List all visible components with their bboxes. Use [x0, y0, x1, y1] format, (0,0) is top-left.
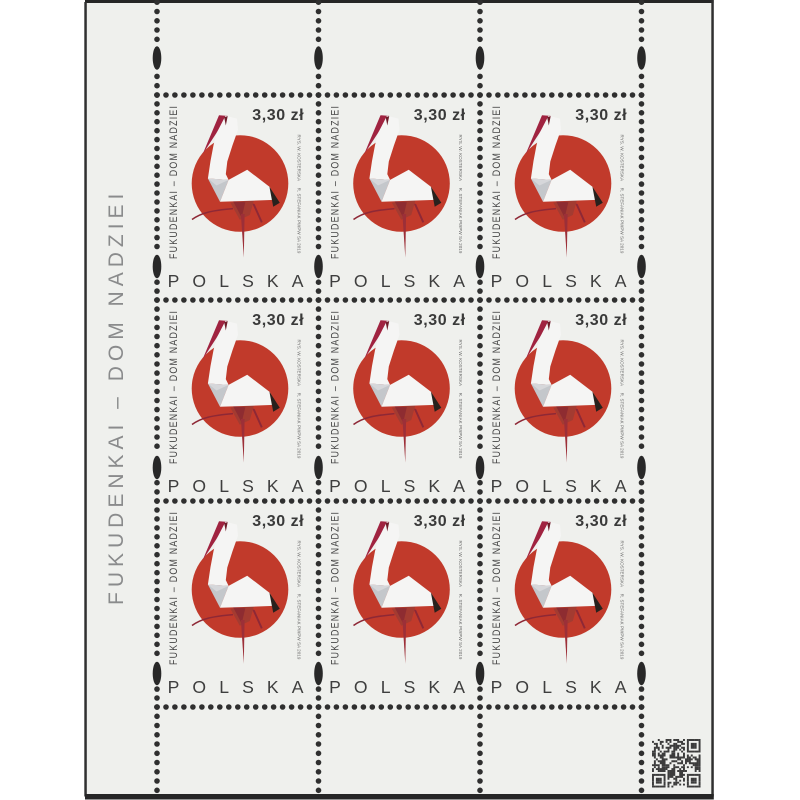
svg-text:FUKUDENKAI – DOM NADZIEI: FUKUDENKAI – DOM NADZIEI — [105, 189, 128, 605]
svg-text:R. STEFANIAK PWPW SA 2019: R. STEFANIAK PWPW SA 2019 — [296, 188, 301, 254]
svg-text:RYS. W. KOSTERSKA: RYS. W. KOSTERSKA — [296, 135, 301, 182]
svg-text:3,30 zł: 3,30 zł — [252, 107, 304, 124]
svg-text:FUKUDENKAI – DOM NADZIEI: FUKUDENKAI – DOM NADZIEI — [168, 105, 180, 259]
svg-text:POLSKA: POLSKA — [168, 271, 317, 291]
